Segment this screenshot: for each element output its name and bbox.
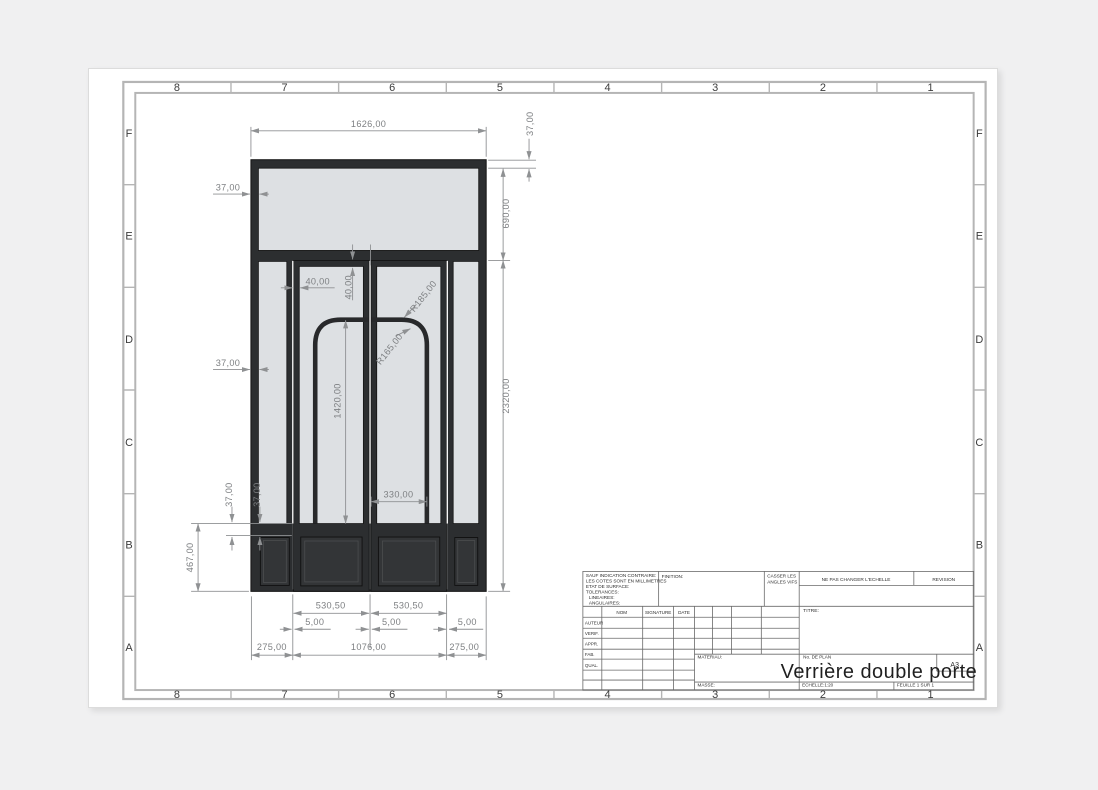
kick-panel-door-left: [301, 537, 362, 586]
dim-text: 275,00: [257, 642, 287, 652]
finition-label: FINITION:: [662, 574, 684, 580]
row-label-qual: QUAL.: [585, 663, 598, 668]
zone-row-left: E: [125, 230, 133, 242]
feuille-label: FEUILLE 1 SUR 1: [897, 683, 935, 688]
zone-col-bottom: 1: [927, 689, 934, 701]
zone-col-bottom: 8: [174, 689, 181, 701]
dim-overall-width: 1626,00: [251, 119, 486, 157]
verriere-drawing: [251, 160, 486, 592]
dim-text: 37,00: [216, 183, 240, 193]
kick-panel-sidelite-right: [455, 538, 478, 586]
zone-col-top: 8: [174, 82, 181, 94]
dim-kick-height: 467,00: [185, 524, 249, 592]
zone-col-top: 3: [712, 82, 719, 94]
zone-row-right: B: [976, 539, 984, 551]
row-label-appr: APPR.: [585, 642, 598, 647]
dim-text: 1420,00: [333, 383, 343, 418]
masse-label: MASSE:: [698, 683, 715, 688]
dim-text: 5,00: [382, 617, 401, 627]
zone-col-top: 4: [605, 82, 612, 94]
plan-label: No. DE PLAN: [803, 655, 831, 660]
dim-text: 2320,00: [501, 378, 511, 413]
dim-lower-height: 2320,00: [488, 260, 511, 591]
dim-text: 5,00: [458, 617, 477, 627]
kick-panel-sidelite-left: [260, 538, 289, 586]
deburr-label: ANGLES VIFS: [767, 579, 797, 584]
zone-row-right: C: [975, 437, 983, 449]
row-label-verif: VERIF.: [585, 631, 599, 636]
dim-text: 1076,00: [351, 642, 386, 652]
zone-row-right: E: [976, 230, 984, 242]
dim-text: 37,00: [216, 358, 240, 368]
nom-header: NOM: [616, 610, 627, 615]
title-block: SAUF INDICATION CONTRAIRE: LES COTES SON…: [583, 571, 977, 690]
dim-text: 37,00: [252, 482, 262, 506]
zone-col-bottom: 3: [712, 689, 719, 701]
revision-label: REVISION: [932, 577, 955, 583]
zone-col-top: 7: [282, 82, 289, 94]
zone-row-right: F: [976, 128, 983, 140]
zone-col-bottom: 6: [389, 689, 396, 701]
zone-row-left: C: [125, 437, 133, 449]
sheet-svg: 8 7 6 5 4 3 2 1 8 7 6 5 4 3 2 1 F E D C: [89, 69, 997, 707]
dim-text: 37,00: [224, 482, 234, 506]
zone-col-top: 2: [820, 82, 827, 94]
dim-text: 40,00: [344, 275, 354, 299]
zone-row-left: B: [125, 539, 133, 551]
dim-transom-height: 690,00: [488, 169, 511, 261]
tolerance-notes: SAUF INDICATION CONTRAIRE: LES COTES SON…: [586, 573, 667, 605]
drawing-title: Verrière double porte: [781, 661, 978, 683]
sidelite-right-glass: [453, 261, 479, 523]
dim-text: 330,00: [384, 490, 414, 500]
zone-col-top: 5: [497, 82, 504, 94]
kick-panel-door-right: [378, 537, 439, 586]
dim-text: 37,00: [525, 112, 535, 136]
viewer-background: 8 7 6 5 4 3 2 1 8 7 6 5 4 3 2 1 F E D C: [0, 0, 1098, 790]
zone-row-right: D: [975, 334, 983, 346]
zone-col-bottom: 5: [497, 689, 504, 701]
door-right-glass: [377, 266, 441, 523]
signature-header: SIGNATURE: [645, 610, 671, 615]
dim-text: 1626,00: [351, 119, 386, 129]
zone-col-bottom: 7: [282, 689, 289, 701]
note-line: TOLERANCES:: [586, 589, 619, 594]
dim-text: 690,00: [501, 199, 511, 229]
transom-glass: [258, 168, 478, 250]
dim-gaps: 5,00 5,00 5,00: [280, 617, 483, 629]
titre-label: TITRE:: [803, 608, 819, 614]
echelle-label: ECHELLE:1:20: [802, 683, 834, 688]
dim-top-bar: 37,00: [488, 112, 536, 182]
deburr-label: CASSER LES: [767, 573, 796, 578]
note-line: ETAT DE SURFACE:: [586, 584, 630, 589]
zone-row-right: A: [976, 642, 984, 654]
sidelite-left-glass: [258, 261, 286, 523]
dim-text: 530,50: [394, 600, 424, 610]
date-header: DATE: [678, 610, 690, 615]
note-line: ANGULAIRES:: [589, 600, 620, 605]
materiau-label: MATERIAU:: [698, 655, 723, 660]
dim-text: 40,00: [305, 276, 329, 286]
dim-text: 530,50: [316, 600, 346, 610]
drawing-sheet: 8 7 6 5 4 3 2 1 8 7 6 5 4 3 2 1 F E D C: [88, 68, 998, 708]
dim-text: 5,00: [305, 617, 324, 627]
dim-bottom-chain: 275,00 1076,00 275,00: [251, 596, 486, 660]
note-line: SAUF INDICATION CONTRAIRE:: [586, 573, 657, 578]
dim-text: 275,00: [449, 642, 479, 652]
dim-text: 467,00: [185, 543, 195, 573]
zone-row-left: F: [126, 128, 133, 140]
door-left-glass: [299, 266, 363, 523]
zone-col-bottom: 4: [605, 689, 612, 701]
zone-col-bottom: 2: [820, 689, 827, 701]
note-line: LES COTES SONT EN MILLIMETRES: [586, 578, 667, 583]
zone-row-left: D: [125, 334, 133, 346]
row-label-auteur: AUTEUR: [585, 621, 604, 626]
zone-col-top: 1: [927, 82, 934, 94]
note-line: LINEAIRES:: [589, 595, 615, 600]
no-scale-label: NE PAS CHANGER L'ECHELLE: [822, 577, 891, 583]
zone-row-left: A: [125, 642, 133, 654]
row-label-fab: FAB.: [585, 652, 595, 657]
zone-col-top: 6: [389, 82, 396, 94]
